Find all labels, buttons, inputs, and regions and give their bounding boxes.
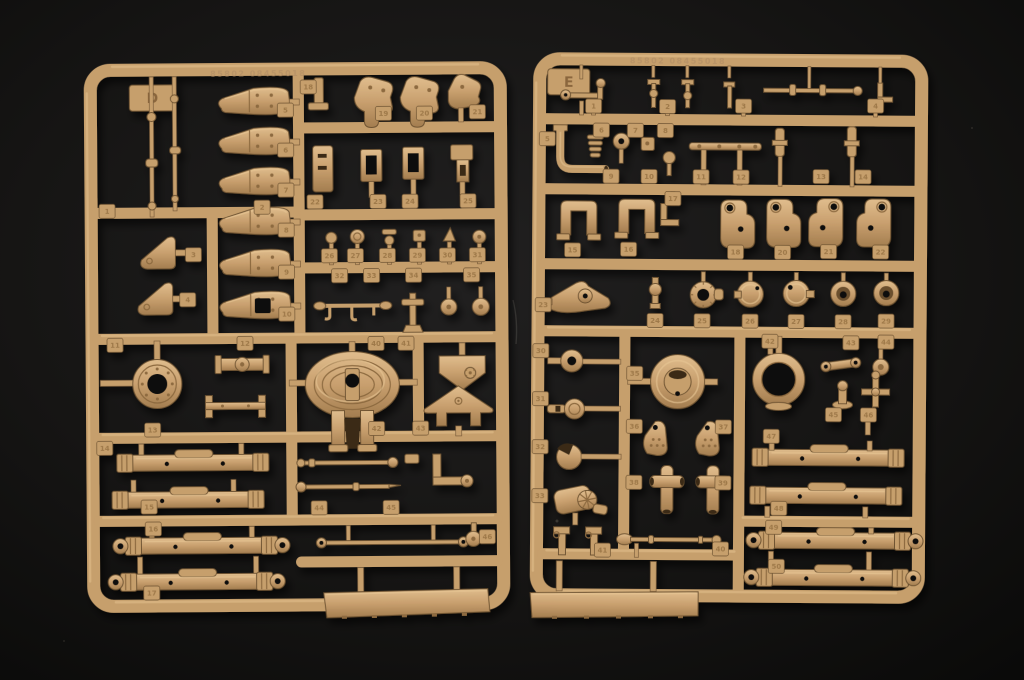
part-number-label: 12 xyxy=(240,340,250,348)
part-number-label: 4 xyxy=(185,296,190,304)
part-number-label: 16 xyxy=(148,525,158,533)
part-number-label: 31 xyxy=(536,395,546,403)
part-number-label: 11 xyxy=(696,173,706,181)
sprue-e-mold-text: 85802 08455018 xyxy=(630,56,726,66)
part-number-label: 42 xyxy=(765,338,775,346)
part-number-label: 21 xyxy=(824,248,834,256)
part-number-label: 30 xyxy=(536,347,546,355)
part-number-label: 15 xyxy=(144,504,154,512)
part-number-label: 14 xyxy=(100,445,110,453)
part-number-label: 7 xyxy=(633,127,638,135)
part-number-label: 37 xyxy=(718,423,728,431)
part-number-label: 33 xyxy=(367,272,377,280)
part-number-label: 1 xyxy=(591,103,596,111)
part-number-label: 16 xyxy=(624,246,634,254)
part-number-label: 5 xyxy=(545,135,550,143)
part-number-label: 43 xyxy=(846,339,856,347)
dust-speck xyxy=(63,640,65,642)
part-number-label: 5 xyxy=(283,107,288,115)
part-number-label: 22 xyxy=(876,249,886,257)
part-number-label: 13 xyxy=(816,173,826,181)
part-number-label: 29 xyxy=(881,318,891,326)
part-number-label: 26 xyxy=(325,252,335,260)
part-number-label: 35 xyxy=(630,370,640,378)
part-number-label: 25 xyxy=(463,197,473,205)
part-number-label: 31 xyxy=(473,251,483,259)
part-number-label: 22 xyxy=(310,198,320,206)
part-number-label: 17 xyxy=(147,590,157,598)
part-number-label: 32 xyxy=(535,443,545,451)
part-number-label: 40 xyxy=(371,340,381,348)
part-number-label: 9 xyxy=(284,269,289,277)
part-number-label: 26 xyxy=(745,318,755,326)
part-number-label: 6 xyxy=(599,127,604,135)
dust-speck xyxy=(556,520,559,523)
part-number-label: 44 xyxy=(314,504,324,512)
part-number-label: 38 xyxy=(629,479,639,487)
part-number-label: 23 xyxy=(373,198,383,206)
part-number-label: 3 xyxy=(191,251,196,259)
part-number-label: 33 xyxy=(535,492,545,500)
part-number-label: 24 xyxy=(405,198,415,206)
part-number-label: 41 xyxy=(401,340,411,348)
sprue-e-letter: E xyxy=(564,75,574,91)
part-number-label: 20 xyxy=(778,249,788,257)
part-number-label: 35 xyxy=(467,271,477,279)
part-number-label: 45 xyxy=(386,504,396,512)
dust-speck xyxy=(971,127,973,129)
part-number-label: 12 xyxy=(736,174,746,182)
part-number-label: 40 xyxy=(716,545,726,553)
part-number-label: 28 xyxy=(838,318,848,326)
part-number-label: 21 xyxy=(473,108,483,116)
part-number-label: 27 xyxy=(791,318,801,326)
part-number-label: 1 xyxy=(105,208,110,216)
part-number-label: 7 xyxy=(283,187,288,195)
part-number-label: 50 xyxy=(771,563,781,571)
part-number-label: 2 xyxy=(260,204,265,212)
part-number-label: 46 xyxy=(864,411,874,419)
part-number-label: 14 xyxy=(858,173,868,181)
part-number-label: 4 xyxy=(873,102,878,110)
part-number-label: 20 xyxy=(420,110,430,118)
part-number-label: 8 xyxy=(663,127,668,135)
part-number-label: 45 xyxy=(829,411,839,419)
part-number-label: 18 xyxy=(731,249,741,257)
part-number-label: 29 xyxy=(413,252,423,260)
part-number-label: 18 xyxy=(303,83,313,91)
part-number-label: 36 xyxy=(629,423,639,431)
part-number-label: 23 xyxy=(538,301,548,309)
part-number-label: 39 xyxy=(718,479,728,487)
photo-canvas: D 85802 08455018 xyxy=(0,0,1024,680)
part-number-label: 49 xyxy=(769,524,779,532)
part-number-label: 30 xyxy=(443,251,453,259)
part-number-label: 3 xyxy=(741,103,746,111)
part-number-label: 34 xyxy=(409,272,419,280)
part-number-label: 28 xyxy=(383,252,393,260)
sprue-d-mold-text: 85802 08455018 xyxy=(210,69,306,79)
part-number-label: 32 xyxy=(335,272,345,280)
part-number-label: 15 xyxy=(568,246,578,254)
part-number-label: 43 xyxy=(416,425,426,433)
part-number-label: 11 xyxy=(110,342,120,350)
part-number-label: 27 xyxy=(351,252,361,260)
part-number-label: 41 xyxy=(598,547,608,555)
part-number-label: 19 xyxy=(379,110,389,118)
part-number-label: 17 xyxy=(668,195,678,203)
part-number-label: 13 xyxy=(148,426,158,434)
part-number-label: 9 xyxy=(609,173,614,181)
part-number-label: 24 xyxy=(650,317,660,325)
part-number-label: 46 xyxy=(482,533,492,541)
part-number-label: 48 xyxy=(774,505,784,513)
sprue-photo: D 85802 08455018 xyxy=(0,0,1024,680)
part-number-label: 44 xyxy=(881,339,891,347)
part-number-label: 2 xyxy=(665,103,670,111)
part-number-label: 6 xyxy=(283,147,288,155)
part-number-label: 8 xyxy=(284,227,289,235)
part-number-label: 25 xyxy=(697,317,707,325)
part-number-label: 10 xyxy=(282,311,292,319)
part-number-label: 42 xyxy=(372,425,382,433)
part-number-label: 47 xyxy=(766,433,776,441)
part-number-label: 10 xyxy=(644,173,654,181)
